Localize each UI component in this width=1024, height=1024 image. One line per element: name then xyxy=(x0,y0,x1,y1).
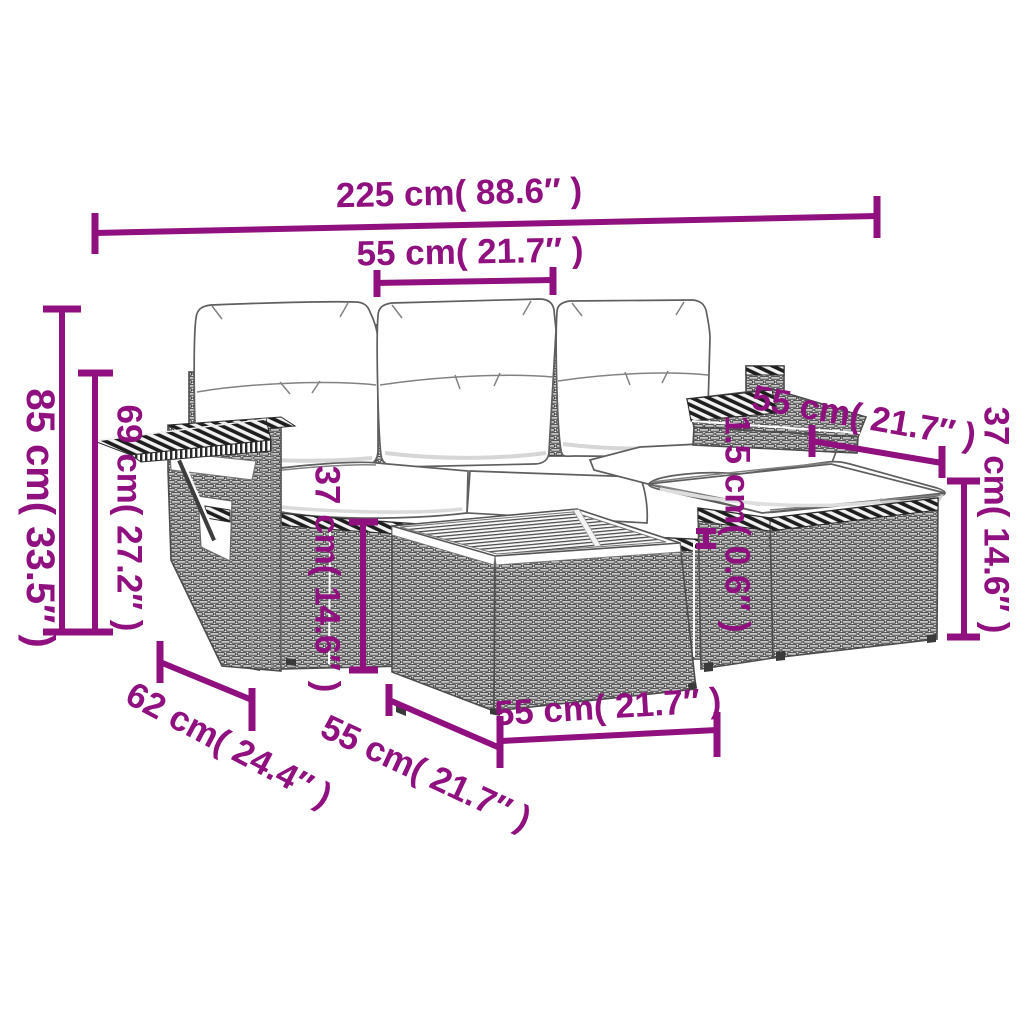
svg-text:85 cm( 33.5″ ): 85 cm( 33.5″ ) xyxy=(18,388,62,647)
svg-text:1.5 cm( 0.6″ ): 1.5 cm( 0.6″ ) xyxy=(718,415,757,632)
svg-text:225 cm( 88.6″ ): 225 cm( 88.6″ ) xyxy=(335,171,582,216)
svg-text:69 cm( 27.2″ ): 69 cm( 27.2″ ) xyxy=(110,405,149,632)
svg-text:37 cm( 14.6″ ): 37 cm( 14.6″ ) xyxy=(308,466,347,693)
svg-text:55 cm( 21.7″ ): 55 cm( 21.7″ ) xyxy=(356,231,584,274)
svg-text:37 cm( 14.6″ ): 37 cm( 14.6″ ) xyxy=(977,407,1016,634)
